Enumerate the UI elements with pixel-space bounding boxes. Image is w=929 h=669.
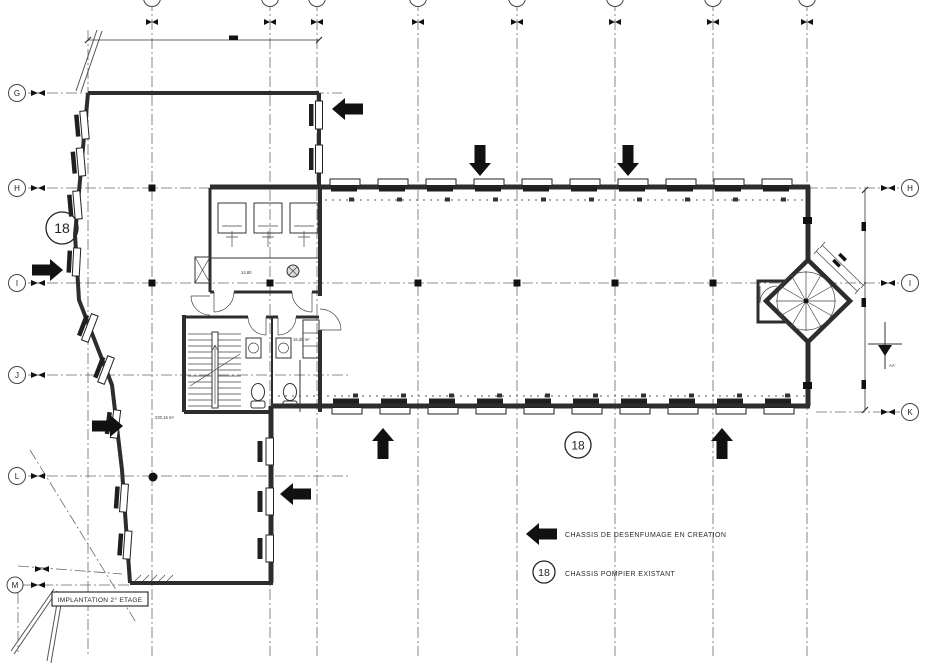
grid-bubbles-top (144, 0, 816, 7)
svg-text:M: M (12, 581, 19, 590)
section-marker: AA' (868, 322, 902, 369)
smoke-vent-arrow-up-2 (711, 428, 733, 459)
stair-core (184, 315, 319, 412)
legend-fire-window-label: CHASSIS POMPIER EXISTANT (565, 571, 676, 578)
svg-text:J: J (15, 371, 19, 380)
fire-window-marker-bottom: 18 (565, 432, 591, 458)
smoke-vent-arrow-right-1 (32, 259, 63, 281)
columns (149, 185, 717, 482)
section-label: AA' (889, 363, 896, 368)
grid-bubble-m: M (7, 577, 23, 593)
svg-text:G: G (14, 89, 20, 98)
windows-misc-walls (258, 101, 813, 562)
legend-smoke-label: CHASSIS DE DESENFUMAGE EN CREATION (565, 532, 726, 539)
grid-bubble-g: G (9, 85, 26, 102)
floor-plan-canvas: G H I J L M H I K (0, 0, 929, 669)
washroom-block: 14,80 (195, 188, 319, 312)
svg-text:K: K (907, 408, 913, 417)
shower-stalls (218, 203, 318, 247)
grid-bubble-i: I (9, 275, 26, 292)
legend: CHASSIS DE DESENFUMAGE EN CREATION 18 CH… (526, 523, 726, 583)
smoke-vent-arrow-down-1 (469, 145, 491, 176)
corridor-door (191, 296, 210, 315)
core-east-wall (320, 187, 341, 412)
grid-bubbles-right: H I K (902, 180, 919, 421)
grid-bubble-h: H (9, 180, 26, 197)
area-label-wc: 15,28 m² (293, 337, 310, 342)
dim-label: 14,80 (241, 270, 252, 275)
sink (276, 338, 291, 358)
svg-text:18: 18 (54, 220, 70, 236)
toilet (251, 384, 265, 409)
ceiling-dashed-lines (278, 198, 805, 398)
sink (246, 338, 261, 358)
svg-text:18: 18 (571, 439, 585, 453)
grid-bubble-l: L (9, 468, 26, 485)
smoke-vent-arrow-down-2 (617, 145, 639, 176)
grid-bubble-k-right: K (902, 404, 919, 421)
svg-text:18: 18 (538, 567, 550, 579)
svg-text:H: H (907, 184, 913, 193)
svg-text:I: I (16, 279, 18, 288)
smoke-vent-arrow-up-1 (372, 428, 394, 459)
smoke-vent-arrow-left-bottom (280, 483, 311, 505)
spiral-stair-tower (758, 242, 866, 342)
legend-fire-window-icon: 18 (533, 561, 555, 583)
smoke-vent-arrow-left-top (332, 98, 363, 120)
legend-smoke-arrow-icon (526, 523, 557, 545)
wc-cubicles (246, 317, 319, 412)
svg-text:H: H (14, 184, 20, 193)
grid-bubble-j: J (9, 367, 26, 384)
column-round (287, 265, 299, 277)
fire-window-marker-left: 18 (46, 212, 78, 244)
area-label-hall: 220,15 m² (155, 415, 174, 420)
grid-bubbles-left: G H I J L M (7, 85, 26, 594)
grid-bubble-h-right: H (902, 180, 919, 197)
windows-west-wall (66, 111, 132, 559)
svg-text:I: I (909, 279, 911, 288)
svg-text:L: L (15, 472, 20, 481)
floor-plan-sheet: G H I J L M H I K (0, 0, 929, 669)
duct-shaft (195, 257, 210, 283)
drawing-title: IMPLANTATION 2° ETAGE (58, 596, 143, 604)
smoke-vent-arrows (32, 98, 733, 505)
grid-lines (18, 0, 900, 656)
grid-bubble-i-right: I (902, 275, 919, 292)
title-block: IMPLANTATION 2° ETAGE (52, 592, 148, 606)
